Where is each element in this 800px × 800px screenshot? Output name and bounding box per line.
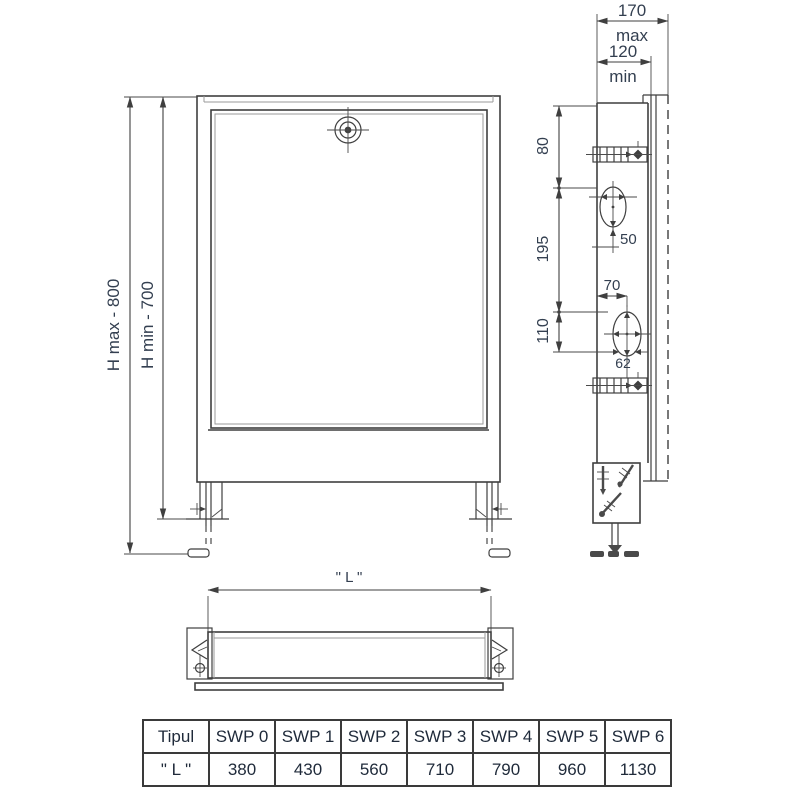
cabinet-plan-outline <box>195 632 503 690</box>
h-max-dimension-label: H max - 800 <box>104 279 123 372</box>
table-header-cell: SWP 3 <box>407 720 473 753</box>
dim-62: 62 <box>613 349 648 378</box>
bottom-view: " L " <box>187 569 513 690</box>
right-foot-pad <box>489 549 510 557</box>
table-row-label: " L " <box>143 753 209 786</box>
table-header-cell: SWP 1 <box>275 720 341 753</box>
left-leg <box>186 482 229 557</box>
dim-50: 50 <box>592 227 637 253</box>
dim-110-label: 110 <box>535 318 552 344</box>
technical-drawing-page: H max - 800 H min - 700 <box>0 0 800 800</box>
table-value-cell: 380 <box>209 753 275 786</box>
h-min-dimension-label: H min - 700 <box>138 281 157 369</box>
right-leg <box>469 482 512 557</box>
wall-bracket-upper <box>586 141 652 162</box>
front-view: H max - 800 H min - 700 <box>104 96 512 557</box>
floor-bracket <box>590 463 640 557</box>
left-foot-pad <box>188 549 209 557</box>
cabinet-front-outline <box>197 96 500 482</box>
table-value-cell: 790 <box>473 753 539 786</box>
dim-70: 70 <box>597 277 627 307</box>
table-header-cell: SWP 2 <box>341 720 407 753</box>
dim-62-label: 62 <box>615 355 631 371</box>
door-edge-strip <box>195 683 503 690</box>
table-value-cell: 1130 <box>605 753 671 786</box>
depth-max-value: 170 <box>618 1 646 20</box>
table-header-cell: SWP 5 <box>539 720 605 753</box>
table-header-cell: SWP 0 <box>209 720 275 753</box>
dim-70-label: 70 <box>604 277 621 294</box>
size-table: Tipul SWP 0 SWP 1 SWP 2 SWP 3 SWP 4 SWP … <box>142 719 672 787</box>
table-value-cell: 430 <box>275 753 341 786</box>
table-value-cell: 710 <box>407 753 473 786</box>
depth-min-suffix: min <box>609 67 636 86</box>
cabinet-door <box>211 110 487 428</box>
wall-bracket-lower <box>586 372 652 393</box>
dim-80-label: 80 <box>535 137 552 155</box>
side-view: 170 max 120 min <box>535 1 668 557</box>
side-vertical-dimensions: 80 195 110 <box>535 106 613 352</box>
length-dimension-label: " L " <box>336 569 363 586</box>
table-header-tipul: Tipul <box>143 720 209 753</box>
table-header-cell: SWP 6 <box>605 720 671 753</box>
size-table-value-row: " L " 380 430 560 710 790 960 1130 <box>143 753 671 786</box>
dim-195-label: 195 <box>535 236 552 263</box>
table-value-cell: 560 <box>341 753 407 786</box>
size-table-header-row: Tipul SWP 0 SWP 1 SWP 2 SWP 3 SWP 4 SWP … <box>143 720 671 753</box>
depth-dimensions: 170 max 120 min <box>597 1 668 103</box>
drawing-canvas: H max - 800 H min - 700 <box>0 0 800 800</box>
dim-50-label: 50 <box>620 231 637 248</box>
table-header-cell: SWP 4 <box>473 720 539 753</box>
table-value-cell: 960 <box>539 753 605 786</box>
length-dimension: " L " <box>208 569 491 632</box>
depth-min-value: 120 <box>609 42 637 61</box>
